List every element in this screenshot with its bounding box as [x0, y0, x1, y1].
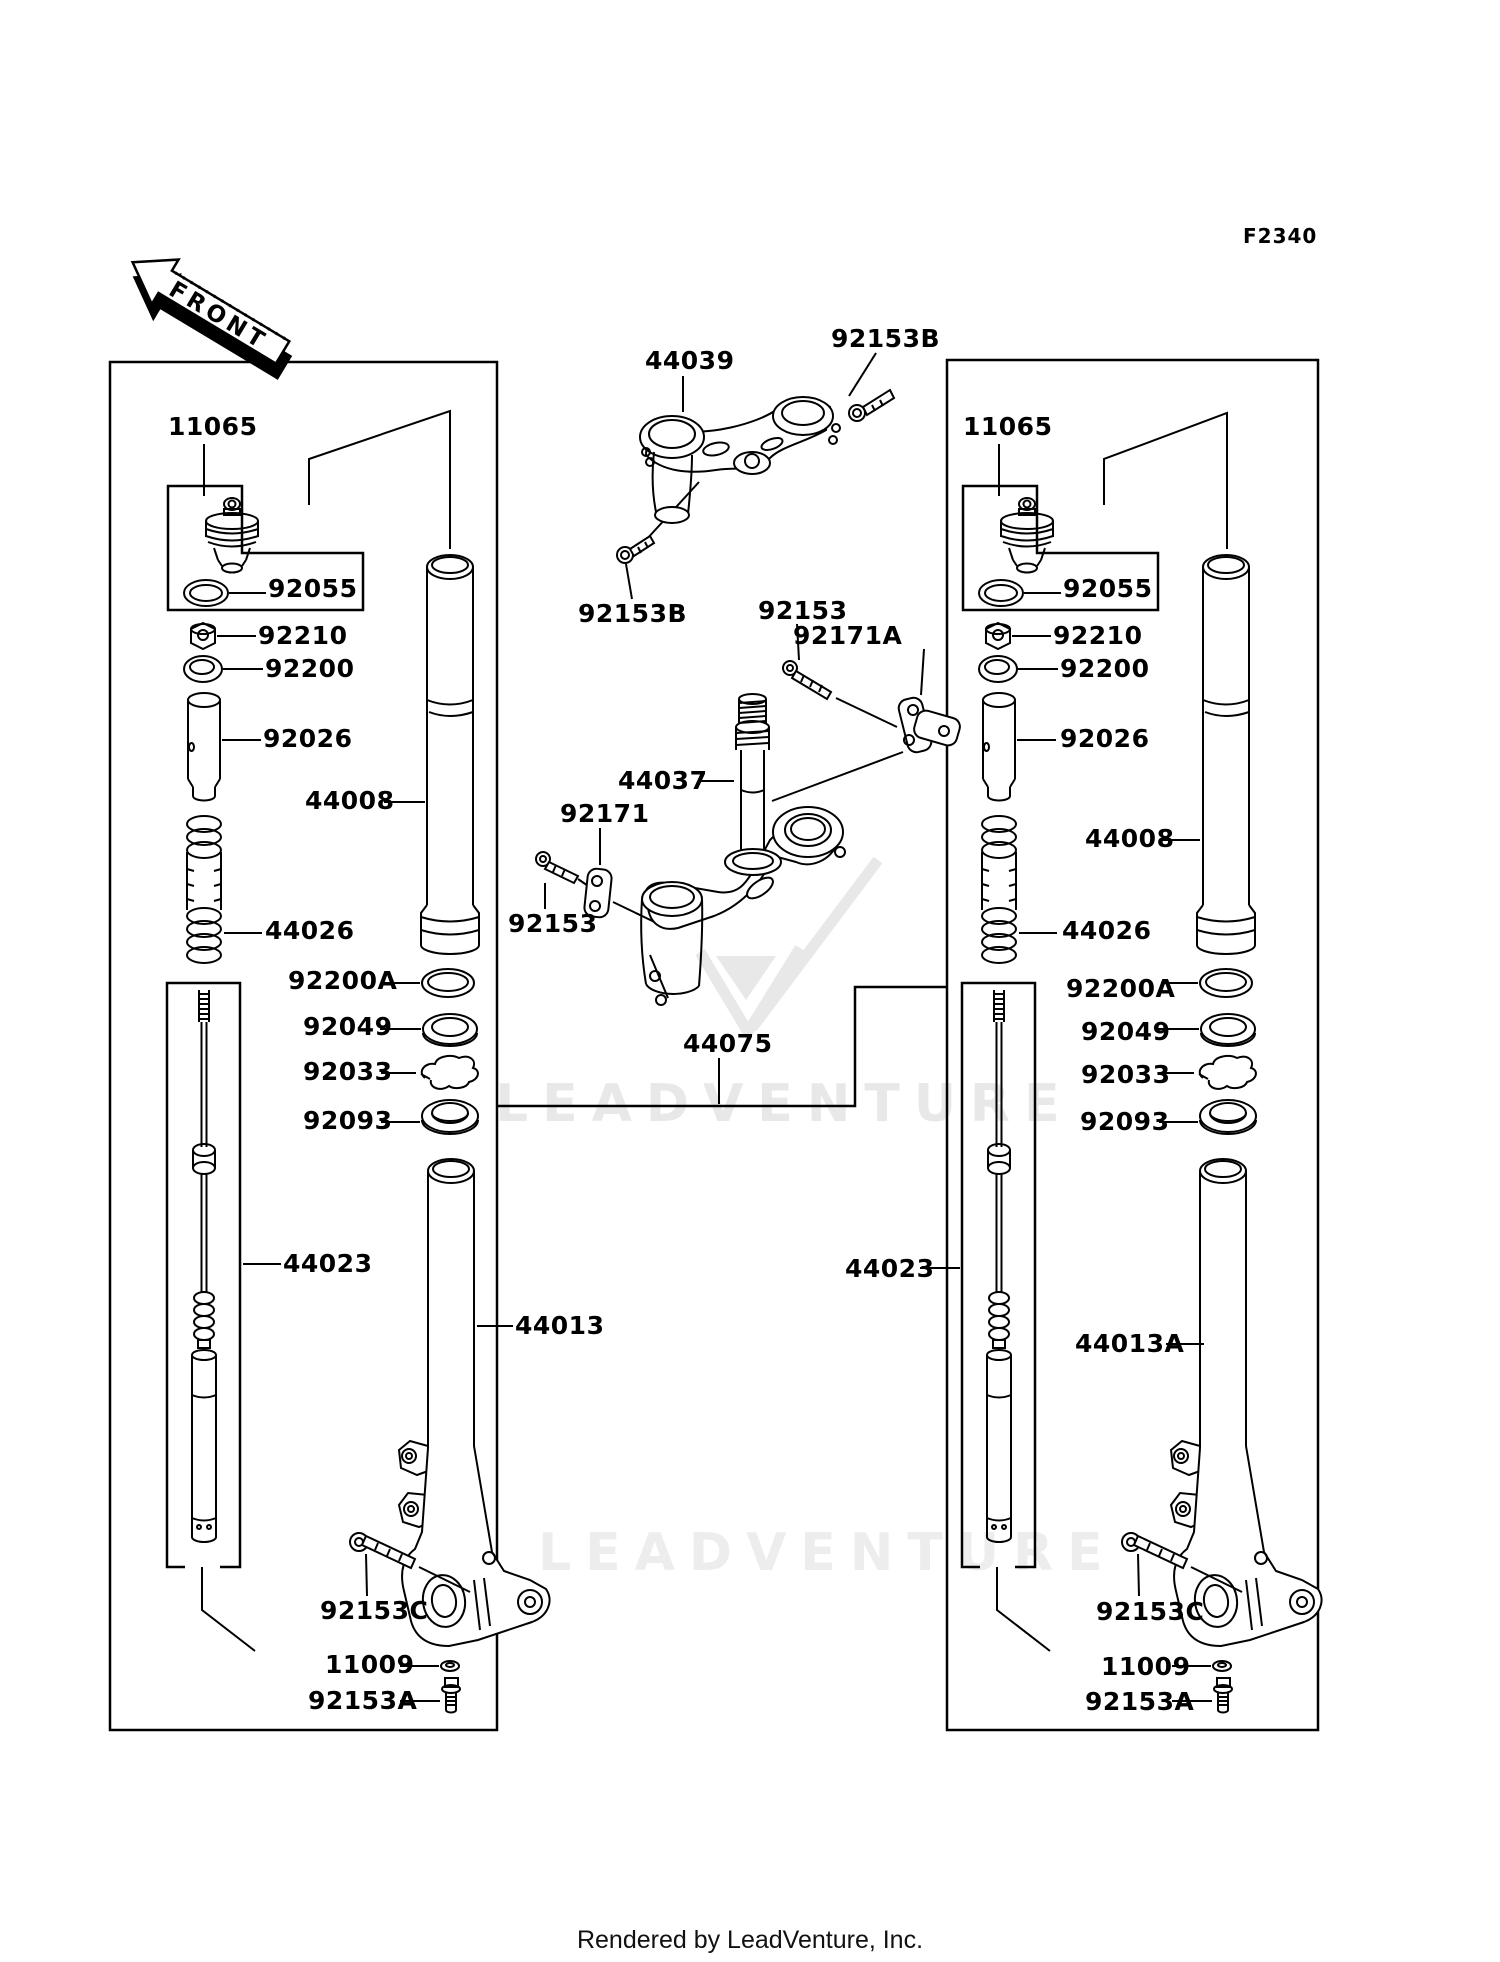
- part-label-mid-44075: 44075: [683, 1031, 772, 1056]
- part-label-right-92093: 92093: [1080, 1109, 1169, 1134]
- part-label-mid-92153-lower: 92153: [508, 911, 597, 936]
- washer-11009: [441, 1661, 459, 1671]
- part-label-mid-92171: 92171: [560, 801, 649, 826]
- part-label-left-92026: 92026: [263, 726, 352, 751]
- footer-credit: Rendered by LeadVenture, Inc.: [0, 1926, 1500, 1955]
- part-label-right-92153C: 92153C: [1096, 1599, 1204, 1624]
- part-label-left-92153C: 92153C: [320, 1598, 428, 1623]
- inner-fork-tube-44008: [421, 555, 479, 954]
- fork-cap-bolt-11065: [206, 498, 258, 573]
- outer-fork-tube-44013: [350, 1159, 550, 1713]
- o-ring-92055: [184, 580, 228, 606]
- nut-92210: [191, 623, 215, 649]
- part-label-right-44023: 44023: [845, 1256, 934, 1281]
- part-label-left-11065: 11065: [168, 414, 257, 439]
- drain-bolt-92153A: [442, 1678, 460, 1713]
- clamp-bolt-92153B-lower: [617, 536, 654, 563]
- part-label-right-92210: 92210: [1053, 623, 1142, 648]
- part-label-left-92093: 92093: [303, 1108, 392, 1133]
- part-label-right-92049: 92049: [1081, 1019, 1170, 1044]
- part-label-left-44026: 44026: [265, 918, 354, 943]
- oil-seal-92093: [422, 1100, 478, 1134]
- washer-92200: [184, 656, 222, 682]
- fork-parts-diagram: LEADVENTURE LEADVENTURE: [0, 0, 1500, 1962]
- part-label-left-92210: 92210: [258, 623, 347, 648]
- part-label-top-92153B: 92153B: [831, 326, 940, 351]
- watermark-text: LEADVENTURE: [495, 1074, 1074, 1134]
- bracket-92171A: [897, 696, 962, 754]
- steering-stem-44037: [736, 694, 769, 858]
- part-label-right-92026: 92026: [1060, 726, 1149, 751]
- left-damper-rod-box: [167, 983, 240, 1567]
- part-label-right-11065: 11065: [963, 414, 1052, 439]
- part-label-mid-92171A: 92171A: [793, 623, 902, 648]
- part-label-right-92153A: 92153A: [1085, 1689, 1194, 1714]
- part-label-right-92200A: 92200A: [1066, 976, 1175, 1001]
- figure-code: F2340: [1243, 224, 1317, 248]
- fork-cap-parts-column: [184, 444, 266, 963]
- screw-92153-lower: [536, 852, 578, 883]
- part-label-top-44039: 44039: [645, 348, 734, 373]
- part-label-right-92033: 92033: [1081, 1062, 1170, 1087]
- part-label-left-92033: 92033: [303, 1059, 392, 1084]
- retaining-ring-92033: [421, 1056, 478, 1089]
- clamp-bolt-92153C: [350, 1533, 415, 1568]
- part-label-right-44026: 44026: [1062, 918, 1151, 943]
- part-label-mid-92153-upper: 92153: [758, 598, 847, 623]
- damper-piston-rod-44023: [192, 990, 216, 1542]
- part-label-right-92200: 92200: [1060, 656, 1149, 681]
- part-label-right-92055: 92055: [1063, 576, 1152, 601]
- fork-spring-44026: [187, 816, 221, 963]
- part-label-right-11009: 11009: [1101, 1654, 1190, 1679]
- part-label-right-44008: 44008: [1085, 826, 1174, 851]
- part-label-mid-92153B: 92153B: [578, 601, 687, 626]
- spacer-92026: [188, 693, 220, 801]
- part-label-left-11009: 11009: [325, 1652, 414, 1677]
- part-label-left-92049: 92049: [303, 1014, 392, 1039]
- part-label-left-44013: 44013: [515, 1313, 604, 1338]
- part-label-left-92055: 92055: [268, 576, 357, 601]
- front-direction-arrow: FRONT: [113, 240, 304, 390]
- part-label-right-44013A: 44013A: [1075, 1331, 1184, 1356]
- part-label-left-44023: 44023: [283, 1251, 372, 1276]
- right-damper-rod-box: [962, 983, 1035, 1567]
- leadventure-logo-mark: [700, 860, 878, 1032]
- watermark-text-2: LEADVENTURE: [538, 1523, 1117, 1583]
- part-label-mid-44037: 44037: [618, 768, 707, 793]
- leadventure-watermark: LEADVENTURE LEADVENTURE: [495, 860, 1117, 1583]
- part-label-left-92153A: 92153A: [308, 1688, 417, 1713]
- part-label-left-44008: 44008: [305, 788, 394, 813]
- parts-diagram-page: LEADVENTURE LEADVENTURE: [0, 0, 1500, 1962]
- upper-triple-clamp-44039: [617, 390, 894, 563]
- screw-92153-upper: [783, 661, 831, 699]
- washer-92200A: [422, 969, 474, 997]
- part-label-left-92200A: 92200A: [288, 968, 397, 993]
- part-label-left-92200: 92200: [265, 656, 354, 681]
- dust-seal-92049: [423, 1014, 477, 1046]
- clamp-bolt-92153B-top: [849, 390, 894, 421]
